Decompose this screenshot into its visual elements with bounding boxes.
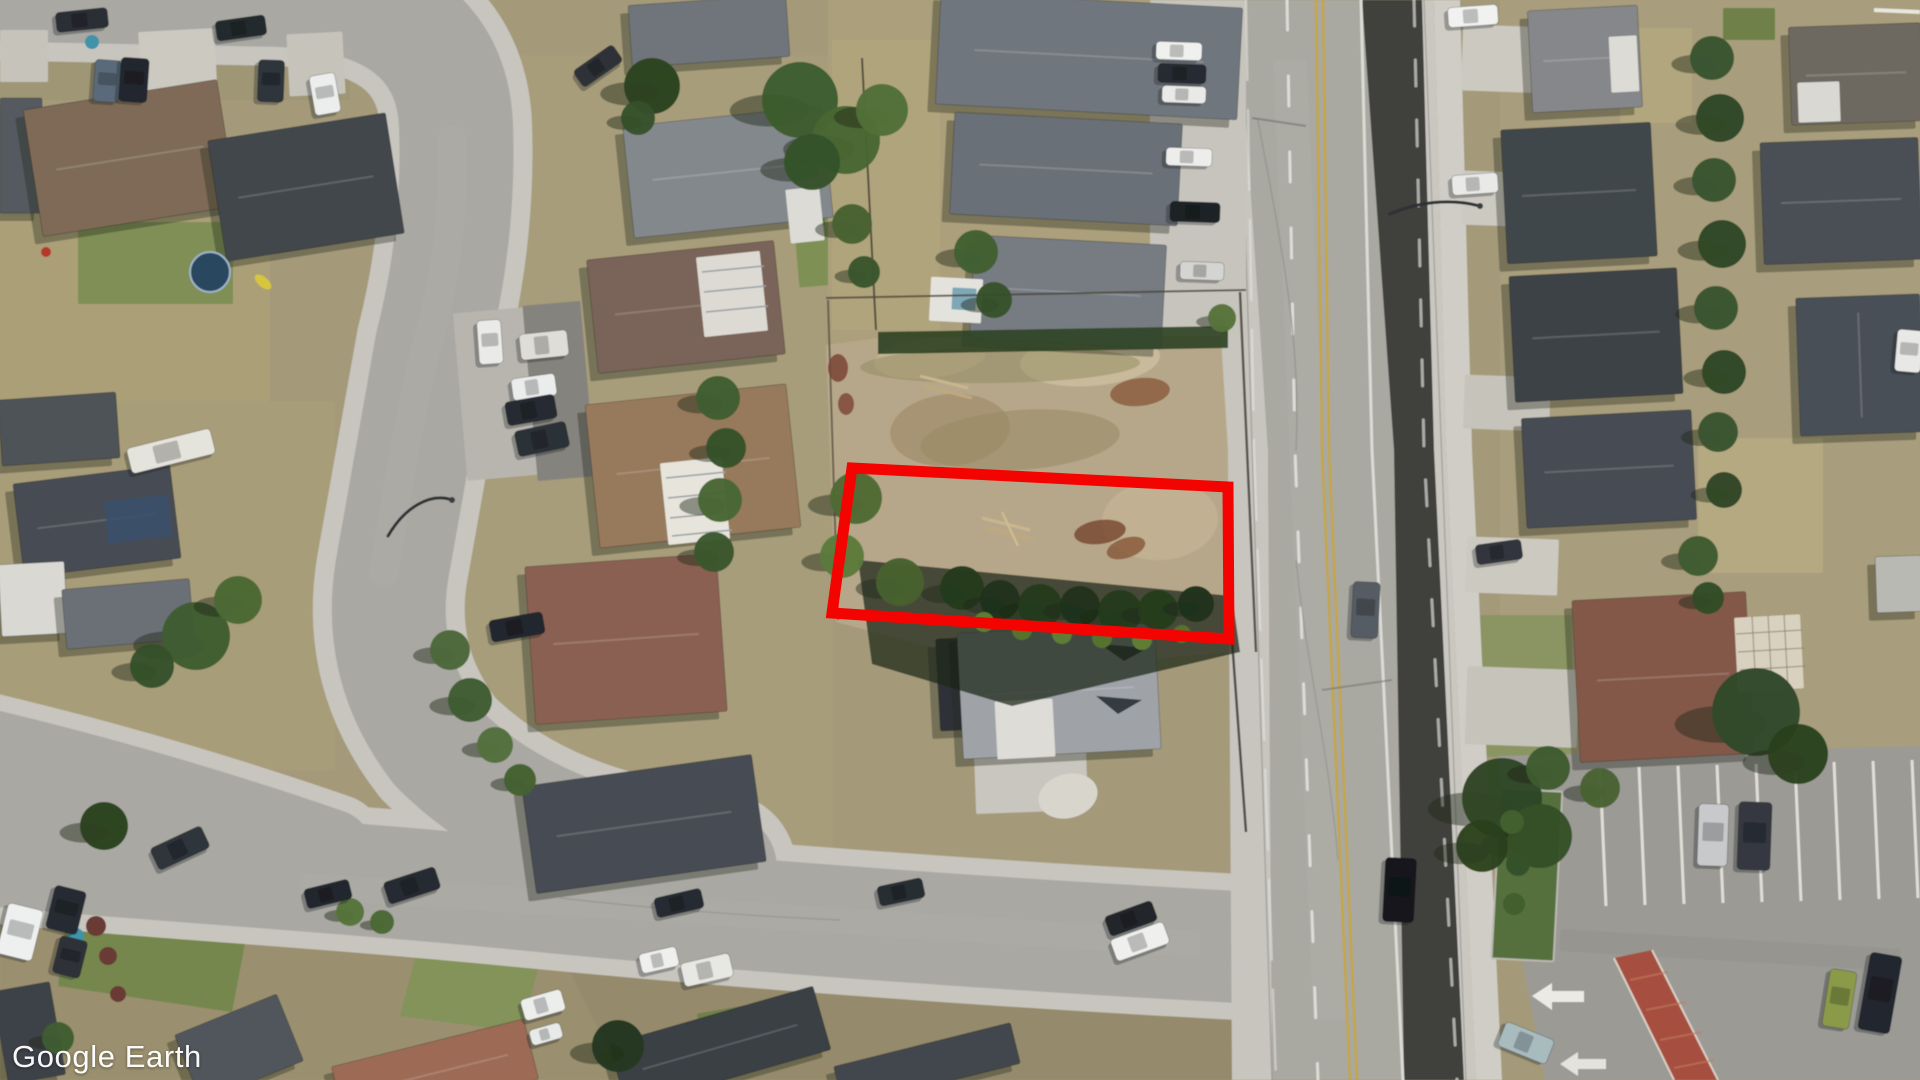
satellite-imagery[interactable] [0, 0, 1920, 1080]
tree [876, 558, 924, 606]
tree [706, 428, 746, 468]
tree [696, 376, 740, 420]
tree [856, 84, 908, 136]
streetlight [1477, 203, 1483, 209]
tree [477, 727, 513, 763]
tree [214, 576, 262, 624]
car-windshield [1743, 822, 1767, 843]
car-windshield [505, 618, 524, 636]
tree [1698, 220, 1746, 268]
tree [1692, 582, 1724, 614]
tree [1178, 586, 1214, 622]
tree [110, 986, 126, 1002]
car-windshield [1185, 205, 1200, 220]
tree [592, 1020, 644, 1072]
tree [1706, 472, 1742, 508]
gazebo-roof [785, 186, 824, 243]
kiddie-pool [85, 35, 99, 49]
driveway [0, 30, 48, 82]
tree [1768, 724, 1828, 784]
tree [698, 478, 742, 522]
car-windshield [1175, 88, 1189, 100]
tree [830, 472, 882, 524]
tree [1692, 158, 1736, 202]
shed-roof [1875, 555, 1920, 613]
tree [848, 256, 880, 288]
car-windshield [481, 333, 499, 347]
driveway [1465, 666, 1580, 748]
car-windshield [98, 72, 117, 86]
car-windshield [1868, 976, 1894, 1003]
carport-roof [696, 251, 768, 337]
car-windshield [534, 335, 550, 355]
terrain-patch [1723, 8, 1775, 40]
car-windshield [1356, 598, 1376, 616]
aerial-photo-layer [0, 0, 1920, 1080]
red-object [41, 247, 51, 257]
terrain-patch [832, 40, 940, 330]
garage-roof [995, 699, 1056, 760]
tree [370, 910, 394, 934]
tree [99, 947, 117, 965]
carport-roof [1797, 81, 1840, 122]
tree [448, 678, 492, 722]
car-windshield [1489, 544, 1505, 560]
tree [1678, 536, 1718, 576]
car-windshield [1170, 44, 1184, 57]
solar-panels [104, 494, 173, 543]
tree [1526, 746, 1570, 790]
trampoline [190, 252, 230, 292]
tree [1506, 852, 1530, 876]
car-windshield [524, 379, 539, 396]
tree [1208, 304, 1236, 332]
car-windshield [1829, 986, 1850, 1006]
car-windshield [124, 71, 144, 86]
tree [42, 1022, 74, 1054]
carport-roof [1609, 35, 1640, 92]
tree [784, 134, 840, 190]
tree [1694, 286, 1738, 330]
tree [1456, 820, 1508, 872]
car-windshield [262, 72, 281, 85]
house-roof [628, 0, 790, 67]
tree [832, 204, 872, 244]
tree [130, 644, 174, 688]
car-windshield [1465, 177, 1480, 192]
car-windshield [891, 884, 907, 901]
car-windshield [71, 12, 88, 28]
tree [954, 230, 998, 274]
car-windshield [1388, 877, 1411, 897]
car-windshield [1463, 9, 1479, 24]
car-windshield [1702, 822, 1724, 841]
car-windshield [230, 20, 247, 36]
fence [1874, 10, 1920, 12]
google-earth-viewport[interactable]: Google Earth [0, 0, 1920, 1080]
debris-pile [838, 393, 854, 415]
car-windshield [1172, 67, 1187, 81]
car-windshield [1900, 342, 1919, 356]
tree [1500, 810, 1524, 834]
streetlight [449, 497, 455, 503]
tree [1580, 768, 1620, 808]
debris-pile [828, 354, 848, 382]
tree [80, 802, 128, 850]
tree [430, 630, 470, 670]
tree [1696, 94, 1744, 142]
car-windshield [1193, 264, 1207, 277]
house-roof [0, 392, 120, 466]
tree [621, 101, 655, 135]
tree [1698, 412, 1738, 452]
tree [1690, 36, 1734, 80]
tree [1503, 893, 1525, 915]
car-windshield [520, 401, 538, 420]
tree [86, 916, 106, 936]
tree [1702, 350, 1746, 394]
tree [694, 532, 734, 572]
tree [504, 764, 536, 796]
tree [976, 282, 1012, 318]
car-windshield [1180, 150, 1194, 163]
